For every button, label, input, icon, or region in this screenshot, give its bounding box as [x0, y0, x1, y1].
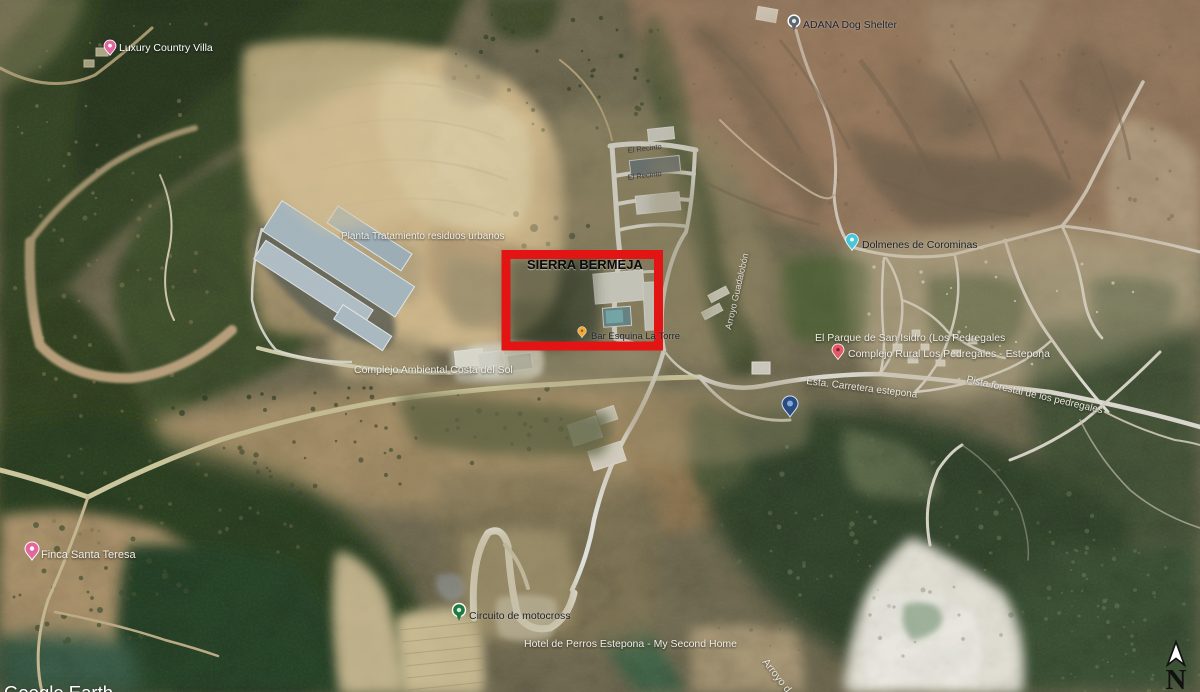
svg-text:Circuito de motocross: Circuito de motocross [469, 610, 571, 622]
svg-text:Bar Esquina La Torre: Bar Esquina La Torre [591, 331, 680, 342]
svg-text:Google Earth: Google Earth [4, 682, 113, 692]
svg-text:ADANA Dog Shelter: ADANA Dog Shelter [803, 19, 897, 31]
svg-text:Planta Tratamiento residuos ur: Planta Tratamiento residuos urbanos [341, 231, 504, 242]
svg-text:Hotel de Perros Estepona - My: Hotel de Perros Estepona - My Second Hom… [524, 638, 737, 650]
svg-text:Finca Santa Teresa: Finca Santa Teresa [41, 549, 136, 561]
svg-text:Luxury Country Villa: Luxury Country Villa [119, 42, 213, 54]
svg-text:SIERRA BERMEJA: SIERRA BERMEJA [527, 257, 643, 272]
svg-text:Dolmenes de Corominas: Dolmenes de Corominas [862, 239, 978, 251]
svg-text:N: N [1166, 664, 1187, 692]
svg-text:El Parque de San Isidro (Los P: El Parque de San Isidro (Los Pedregales [815, 332, 1005, 344]
svg-text:Complejo Ambiental Costa del S: Complejo Ambiental Costa del Sol [354, 364, 513, 376]
svg-text:Complejo Rural Los Pedregales: Complejo Rural Los Pedregales - Estepona [848, 348, 1050, 360]
